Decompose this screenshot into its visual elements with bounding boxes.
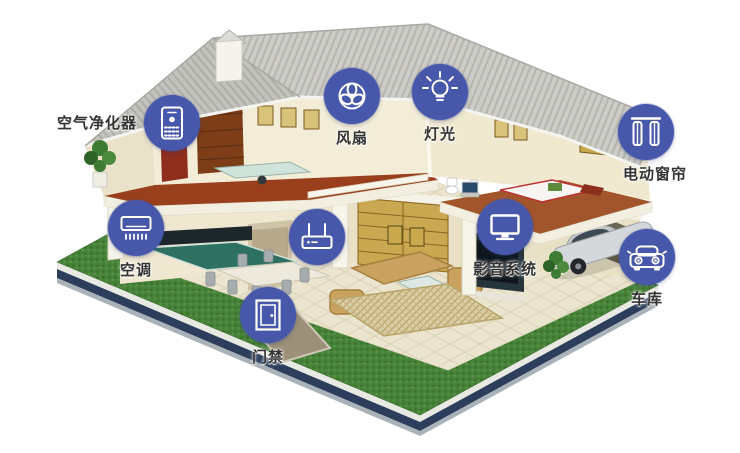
tv-icon[interactable] bbox=[477, 199, 533, 255]
wall-frame bbox=[410, 228, 424, 246]
device-label-av-system: 影音系统 bbox=[473, 258, 537, 279]
wall-frame bbox=[388, 226, 402, 244]
laptop bbox=[461, 182, 479, 197]
smart-home-scene: 空气净化器 风扇 灯光 bbox=[0, 0, 740, 453]
bed-blanket bbox=[548, 183, 562, 191]
device-label-air-purifier: 空气净化器 bbox=[57, 112, 137, 133]
door-icon[interactable] bbox=[240, 287, 296, 343]
lightbulb-icon[interactable] bbox=[412, 64, 468, 120]
device-label-light: 灯光 bbox=[424, 123, 456, 144]
curtain-icon[interactable] bbox=[618, 104, 674, 160]
router-icon[interactable] bbox=[289, 209, 345, 265]
device-label-ac: 空调 bbox=[120, 259, 152, 280]
air-purifier-icon[interactable] bbox=[144, 95, 200, 151]
device-label-fan: 风扇 bbox=[336, 127, 368, 148]
device-label-curtain: 电动窗帘 bbox=[623, 163, 687, 184]
dormer bbox=[216, 40, 242, 82]
device-label-garage: 车库 bbox=[631, 288, 663, 309]
device-label-door-access: 门禁 bbox=[252, 346, 284, 367]
office-chair bbox=[258, 176, 267, 185]
air-conditioner-icon[interactable] bbox=[108, 200, 164, 256]
fan-icon[interactable] bbox=[324, 68, 380, 124]
car-icon[interactable] bbox=[619, 229, 675, 285]
